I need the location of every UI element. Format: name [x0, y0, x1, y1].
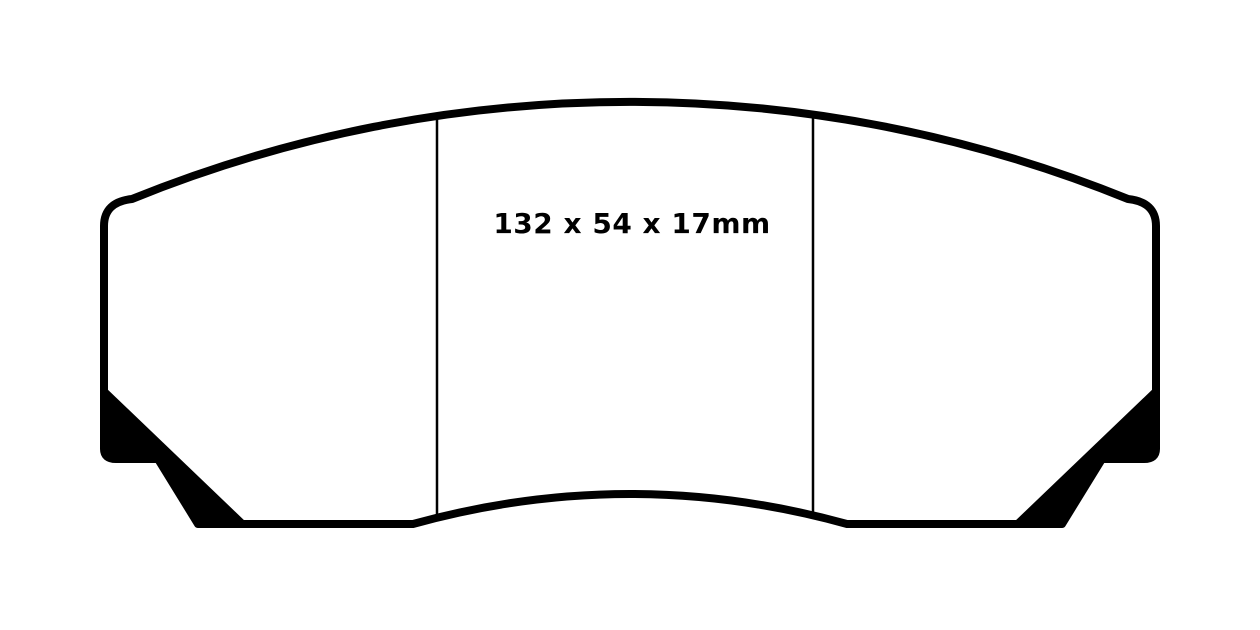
diagram-canvas: 132 x 54 x 17mm — [0, 0, 1260, 630]
brake-pad-diagram: 132 x 54 x 17mm — [0, 0, 1260, 630]
pad-outline — [104, 102, 1156, 524]
dimensions-label: 132 x 54 x 17mm — [493, 207, 770, 240]
